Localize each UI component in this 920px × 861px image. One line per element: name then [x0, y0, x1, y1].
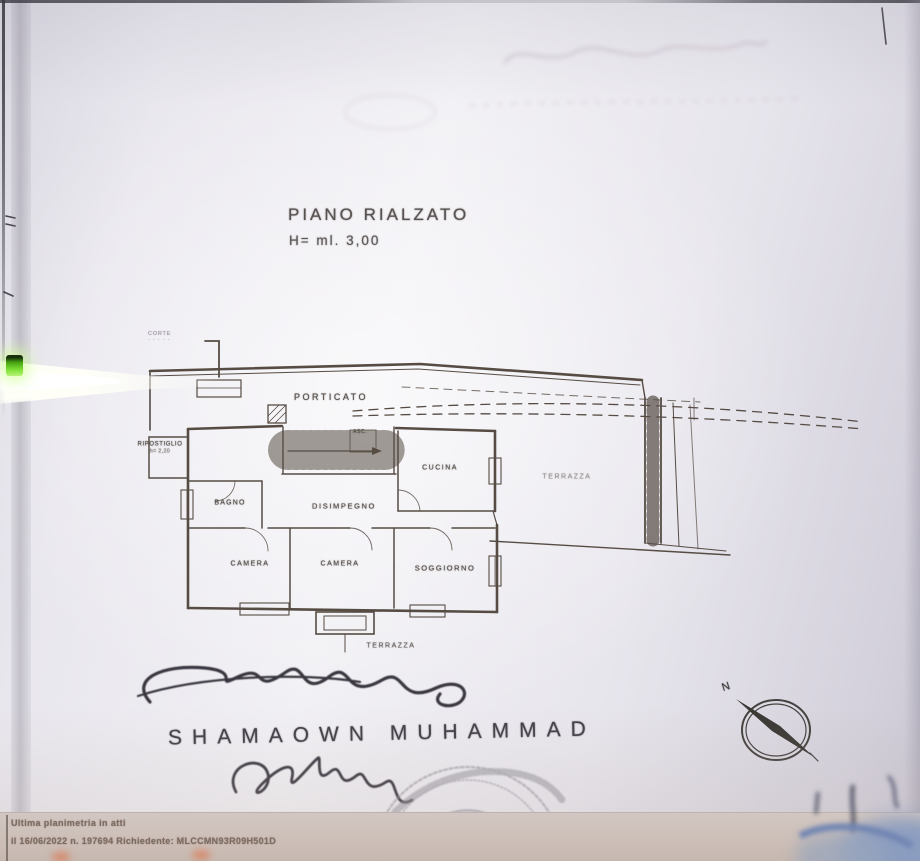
- red-light-glow-2: [192, 850, 210, 860]
- porticato-walls: [150, 341, 645, 430]
- room-label-ripostiglio: RIPOSTIGLIO h= 2,20: [138, 442, 183, 455]
- room-label-disimpegno: DISIMPEGNO: [312, 502, 376, 511]
- red-light-glow-1: [52, 852, 70, 861]
- room-label-camera-1: CAMERA: [231, 561, 270, 568]
- scanned-floorplan-photo: PIANO RIALZATO H= ml. 3,00 CORTE · · · ·…: [0, 0, 920, 861]
- pergola-dashed-lines: [353, 387, 864, 429]
- room-label-ripostiglio-text: RIPOSTIGLIO: [138, 442, 183, 448]
- plan-height-note: H= ml. 3,00: [289, 233, 380, 248]
- plan-title: PIANO RIALZATO: [288, 205, 469, 225]
- room-label-porticato: PORTICATO: [294, 392, 368, 402]
- room-label-asc: ASC.: [353, 429, 367, 435]
- external-stair: [490, 398, 730, 555]
- footer-line-2: il 16/06/2022 n. 197694 Richiedente: MLC…: [11, 836, 276, 846]
- signature-stroke-2: [233, 758, 412, 803]
- room-label-bagno: BAGNO: [214, 500, 245, 507]
- footer-left-edge-line: [6, 815, 8, 861]
- ghost-handwriting: [345, 42, 800, 129]
- blue-object-strokes: [780, 770, 920, 861]
- edge-tick-marks: [4, 8, 886, 296]
- page-right-shadow-band: [904, 0, 920, 861]
- room-label-ripostiglio-sub: h= 2,20: [138, 449, 183, 455]
- page-left-edge-line: [2, 0, 5, 420]
- room-label-cucina: CUCINA: [422, 465, 458, 472]
- signature-stroke-1: [138, 667, 464, 705]
- room-label-soggiorno: SOGGIORNO: [415, 564, 476, 573]
- windows: [181, 458, 501, 617]
- page-top-edge-line: [0, 0, 920, 3]
- outside-area-label: CORTE · · · · ·: [148, 331, 171, 343]
- green-led-light: [6, 355, 23, 376]
- outside-area-label-line2: · · · · ·: [148, 337, 170, 343]
- terrace-bump: [316, 612, 374, 652]
- compass-icon: [736, 699, 818, 761]
- room-label-camera-2: CAMERA: [321, 561, 360, 568]
- door-arcs: [215, 481, 452, 551]
- staircase: [283, 427, 394, 473]
- page-left-shadow-band: [11, 0, 31, 861]
- footer-line-1: Ultima planimetria in atti: [11, 818, 126, 828]
- room-label-terrazza-right: TERRAZZA: [543, 474, 592, 481]
- room-label-terrazza-bottom: TERRAZZA: [367, 643, 416, 650]
